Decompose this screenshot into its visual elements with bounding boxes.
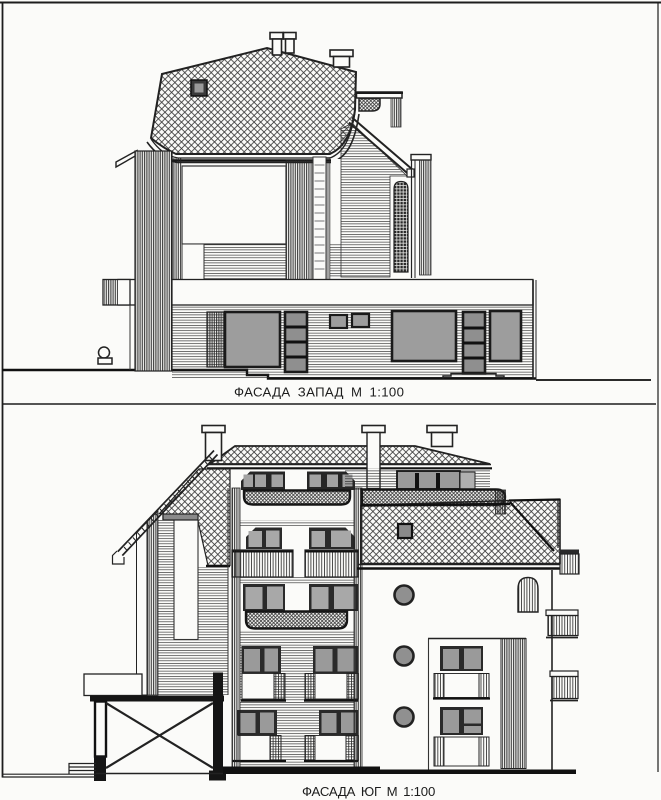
- svg-text:ФАСАДА ЮГ М 1:100: ФАСАДА ЮГ М 1:100: [302, 784, 435, 799]
- svg-text:ФАСАДА ЗАПАД М 1:100: ФАСАДА ЗАПАД М 1:100: [234, 385, 404, 400]
